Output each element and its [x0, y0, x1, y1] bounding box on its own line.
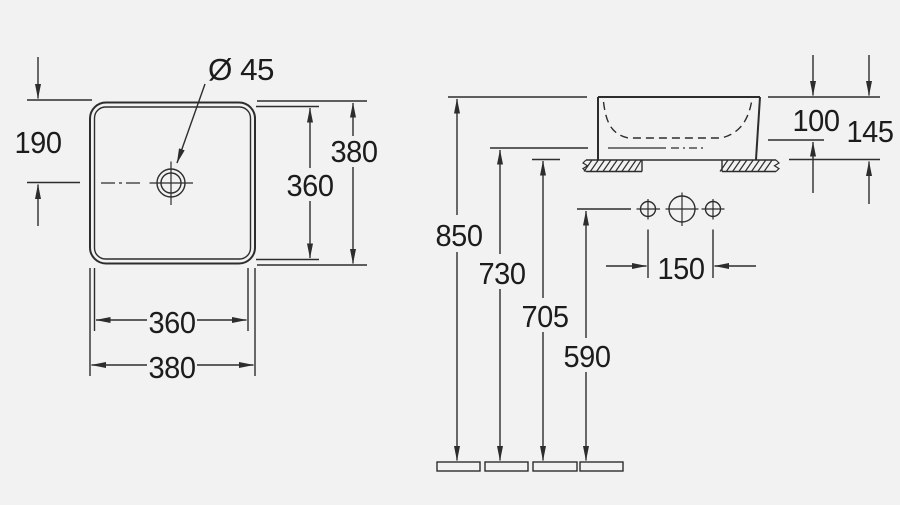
dim-190: 190: [15, 57, 93, 226]
dim-label-190: 190: [15, 125, 62, 160]
break-mark: [775, 160, 780, 172]
dim-label-150: 150: [658, 251, 705, 286]
basin-side-outline: [586, 97, 776, 160]
drain-hole: [101, 162, 193, 206]
tap-holes: [637, 193, 725, 227]
dim-145: 145: [847, 55, 894, 204]
dim-label-360-horizontal: 360: [149, 305, 196, 340]
dim-360-vertical: 360: [287, 108, 334, 258]
dim-label-705: 705: [522, 299, 569, 334]
dim-label-380-vertical: 380: [331, 134, 378, 169]
dim-150: 150: [606, 230, 756, 287]
dim-label-drain-diameter: Ø 45: [208, 52, 274, 87]
technical-drawing-canvas: Ø 45 190 360 380: [0, 0, 900, 505]
countertop-hatch-right: [720, 160, 779, 172]
dim-380-vertical: 380: [331, 103, 378, 264]
dim-label-360-vertical: 360: [287, 168, 334, 203]
top-view: Ø 45 190 360 380: [15, 52, 378, 385]
dim-label-590: 590: [564, 339, 611, 374]
dim-label-730: 730: [479, 256, 526, 291]
dim-label-145: 145: [847, 114, 894, 149]
dim-360-horizontal: 360: [96, 305, 247, 340]
bowl-hidden-contour: [604, 102, 752, 138]
leader-line: [177, 84, 205, 163]
dim-705: 705: [522, 161, 569, 461]
dim-380-horizontal: 380: [92, 350, 254, 385]
dim-label-100: 100: [793, 103, 840, 138]
dimension-diagram: Ø 45 190 360 380: [0, 0, 900, 505]
dim-850: 850: [436, 99, 483, 461]
dim-label-850: 850: [436, 218, 483, 253]
dim-730: 730: [479, 150, 526, 461]
side-view: 150 100 145 850: [436, 55, 894, 471]
dim-label-380-horizontal: 380: [149, 350, 196, 385]
dim-100: 100: [793, 55, 840, 193]
dim-590: 590: [564, 211, 611, 461]
countertop-hatch-left: [583, 160, 642, 172]
floor-reference-marks: [437, 462, 623, 471]
